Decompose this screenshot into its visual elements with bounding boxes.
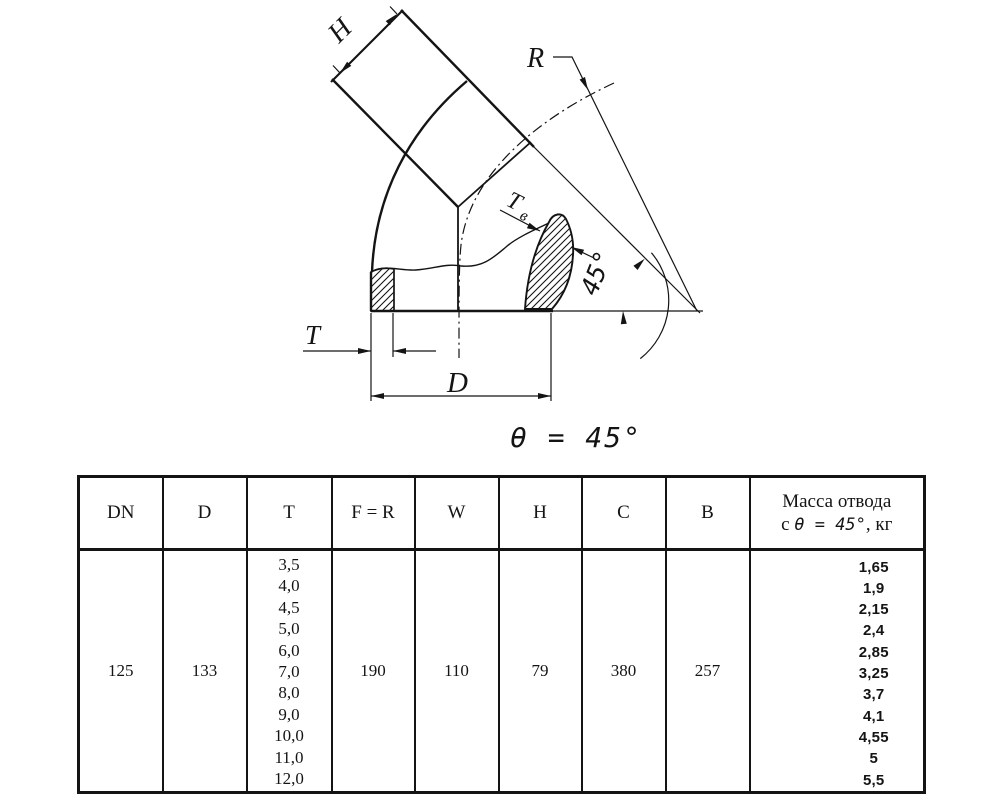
data-row: 125 133 3,54,04,55,06,07,08,09,010,011,0…	[79, 550, 925, 793]
cell-c: 380	[582, 550, 666, 793]
theta-equation-label: θ = 45°	[510, 421, 642, 454]
cell-fr: 190	[332, 550, 415, 793]
t-arrow-left	[358, 348, 371, 354]
angle-arc-arrow-upper	[633, 259, 644, 270]
cell-mass-values: 1,651,92,152,42,853,253,74,14,5555,5	[750, 550, 925, 793]
mass-header-line2: с θ = 45°, кг	[751, 513, 924, 537]
col-header-t: T	[247, 477, 332, 550]
angle-dimension-arc	[640, 253, 668, 359]
col-header-mass: Масса отвода с θ = 45°, кг	[750, 477, 925, 550]
dim-label-d: D	[446, 367, 468, 399]
bend-centerline	[459, 83, 614, 358]
h-arrow-upper	[386, 14, 397, 25]
cell-t-values: 3,54,04,55,06,07,08,09,010,011,012,0	[247, 550, 332, 793]
header-row: DN D T F = R W H C B Масса отвода с θ = …	[79, 477, 925, 550]
col-header-w: W	[415, 477, 499, 550]
cell-w: 110	[415, 550, 499, 793]
dim-label-r: R	[526, 43, 544, 74]
t-arrow-right	[393, 348, 406, 354]
t-values-list: 3,54,04,55,06,07,08,09,010,011,012,0	[248, 551, 331, 791]
inclined-outer-edge	[401, 10, 534, 147]
mass-values-list: 1,651,92,152,42,853,253,74,14,5555,5	[751, 552, 924, 791]
col-header-c: C	[582, 477, 666, 550]
col-header-fr: F = R	[332, 477, 415, 550]
cell-d: 133	[163, 550, 247, 793]
arrowheads	[340, 14, 645, 399]
elbow-drawing: H R T в 45° T D θ = 45°	[0, 0, 1000, 462]
h-ext-tick-upper	[390, 7, 397, 15]
mass-header-theta: θ = 45°	[794, 515, 866, 535]
dimension-lines	[303, 7, 703, 402]
transition-lines	[458, 142, 531, 311]
dim-label-t: T	[305, 320, 322, 350]
d-arrow-left	[371, 393, 384, 399]
mass-header-suffix: , кг	[866, 514, 893, 535]
cell-dn: 125	[79, 550, 163, 793]
r-arrow	[580, 77, 588, 90]
col-header-dn: DN	[79, 477, 163, 550]
r-leader-line	[553, 57, 697, 311]
spec-table: DN D T F = R W H C B Масса отвода с θ = …	[77, 475, 926, 794]
mass-header-prefix: с	[781, 514, 794, 535]
left-wall-section	[371, 268, 394, 311]
cell-h: 79	[499, 550, 582, 793]
catalog-page: H R T в 45° T D θ = 45° DN D T F = R W H…	[0, 0, 1000, 800]
inclined-inner-edge	[332, 79, 458, 207]
cell-b: 257	[666, 550, 750, 793]
col-header-d: D	[163, 477, 247, 550]
mass-header-line1: Масса отвода	[751, 490, 924, 513]
h-ext-tick-lower	[333, 66, 340, 74]
col-header-b: B	[666, 477, 750, 550]
angle-arc-arrow-lower	[621, 311, 627, 324]
dim-label-tw: T в	[501, 187, 537, 225]
d-arrow-right	[538, 393, 551, 399]
dim-label-h: H	[321, 11, 359, 49]
outer-bend-arc	[372, 81, 467, 272]
col-header-h: H	[499, 477, 582, 550]
